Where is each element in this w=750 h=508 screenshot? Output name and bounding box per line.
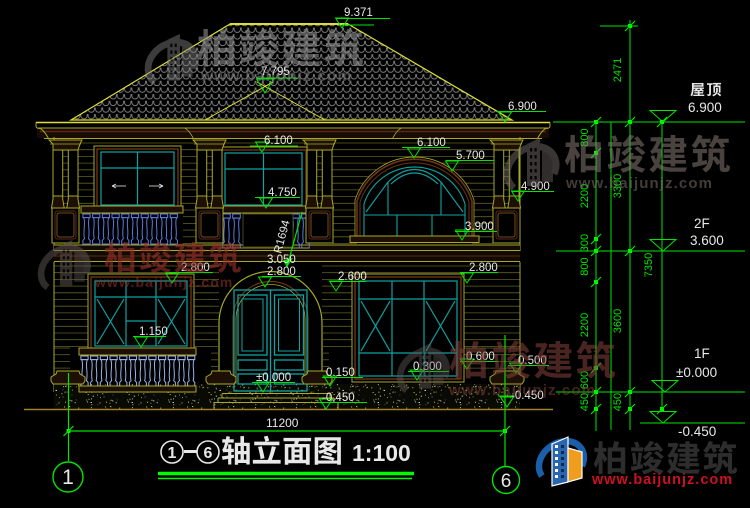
svg-text:3600: 3600: [612, 309, 624, 333]
svg-text:7350: 7350: [643, 253, 655, 277]
svg-text:6: 6: [204, 445, 213, 462]
svg-text:2F: 2F: [694, 216, 710, 231]
svg-text:6.900: 6.900: [688, 100, 722, 115]
svg-text:±0.000: ±0.000: [676, 365, 717, 380]
svg-text:1:100: 1:100: [352, 440, 411, 466]
svg-text:6: 6: [501, 471, 512, 492]
svg-text:5.700: 5.700: [456, 150, 485, 162]
svg-text:2.600: 2.600: [338, 271, 367, 283]
svg-text:1F: 1F: [694, 346, 710, 361]
svg-text:-0.450: -0.450: [678, 424, 716, 439]
svg-text:800: 800: [579, 257, 591, 275]
svg-text:±0.000: ±0.000: [256, 372, 291, 384]
svg-text:300: 300: [579, 234, 591, 252]
svg-text:1: 1: [168, 445, 177, 462]
svg-text:1.150: 1.150: [139, 326, 168, 338]
svg-text:11200: 11200: [266, 416, 299, 430]
svg-text:www.baijunjz.com: www.baijunjz.com: [200, 68, 352, 85]
svg-text:3.600: 3.600: [690, 233, 724, 248]
svg-text:9.371: 9.371: [344, 7, 373, 19]
svg-text:2.800: 2.800: [469, 262, 498, 274]
svg-text:2200: 2200: [579, 313, 591, 337]
svg-text:450: 450: [612, 393, 624, 411]
svg-text:www.baijunjz.com: www.baijunjz.com: [448, 382, 596, 399]
svg-text:2.800: 2.800: [267, 266, 296, 278]
svg-text:0.150: 0.150: [326, 367, 355, 379]
svg-text:6.100: 6.100: [264, 135, 293, 147]
svg-text:3.900: 3.900: [465, 221, 494, 233]
svg-text:www.baijunjz.com: www.baijunjz.com: [591, 472, 733, 488]
svg-text:www.baijunjz.com: www.baijunjz.com: [565, 175, 713, 192]
svg-text:2471: 2471: [612, 58, 624, 82]
svg-text:www.baijunjz.com: www.baijunjz.com: [94, 274, 233, 290]
svg-text:3.050: 3.050: [267, 254, 296, 266]
svg-text:1: 1: [62, 466, 74, 489]
svg-text:-0.450: -0.450: [322, 392, 355, 404]
svg-text:6.900: 6.900: [508, 101, 537, 113]
svg-text:4.750: 4.750: [268, 187, 297, 199]
svg-text:6.100: 6.100: [417, 137, 446, 149]
